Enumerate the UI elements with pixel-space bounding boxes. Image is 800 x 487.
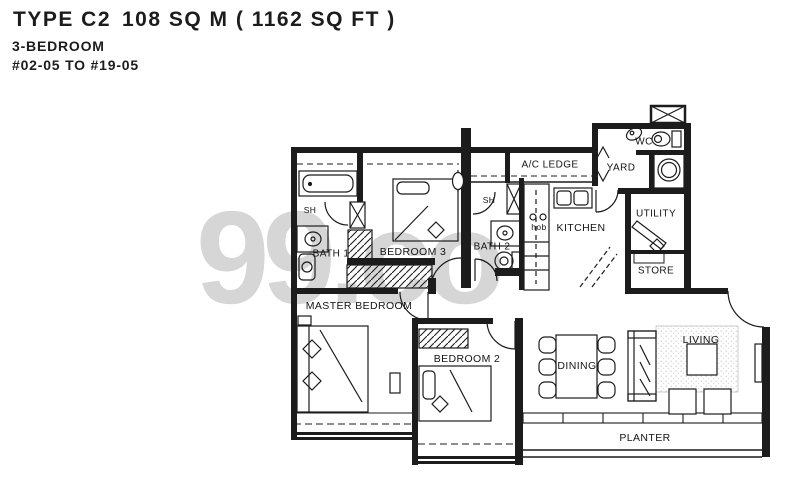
floorplan-page: TYPE C2 108 SQ M ( 1162 SQ FT ) 3-BEDROO… (0, 0, 800, 487)
master-bed (297, 326, 368, 412)
yard-kitchen-door (596, 190, 618, 212)
bedroom2-wardrobe (419, 329, 468, 348)
bathtub (299, 171, 357, 196)
ac-unit (651, 106, 685, 123)
bedroom3-bed (393, 179, 458, 241)
master-bedroom-door (400, 292, 428, 320)
doors (325, 147, 764, 349)
coffee-table (687, 344, 717, 375)
dining-table (539, 335, 615, 398)
sofa (628, 331, 656, 401)
master-dresser (390, 373, 400, 393)
tv-console (755, 344, 762, 382)
walls (291, 123, 770, 465)
bedroom3-wardrobe (348, 230, 372, 263)
master-wardrobe (347, 265, 432, 288)
armchair (669, 389, 696, 414)
fridge-space (580, 247, 617, 287)
bath2-sink (491, 221, 521, 246)
bedroom2-bed (419, 366, 491, 421)
entrance-door (728, 291, 764, 327)
bath1-toilet (299, 254, 315, 280)
bath1-sink (297, 226, 328, 252)
washing-machine (654, 152, 684, 188)
kitchen-sink (554, 188, 592, 208)
bedroom2-door (487, 321, 515, 349)
duct-shaft (350, 202, 365, 228)
bath1-shower-door (325, 202, 348, 225)
wc-bifold-door (597, 147, 609, 181)
master-bedside-table (298, 316, 311, 325)
kitchen-counter (524, 184, 549, 290)
armchair-2 (704, 389, 731, 414)
duct-shaft-2 (507, 184, 521, 214)
floorplan-drawing (0, 0, 800, 487)
bath2-door (475, 259, 497, 281)
wc-toilet (652, 131, 681, 147)
bath2-toilet (495, 252, 520, 270)
ironing-board (632, 221, 666, 263)
bath2-shower-door (473, 192, 495, 214)
